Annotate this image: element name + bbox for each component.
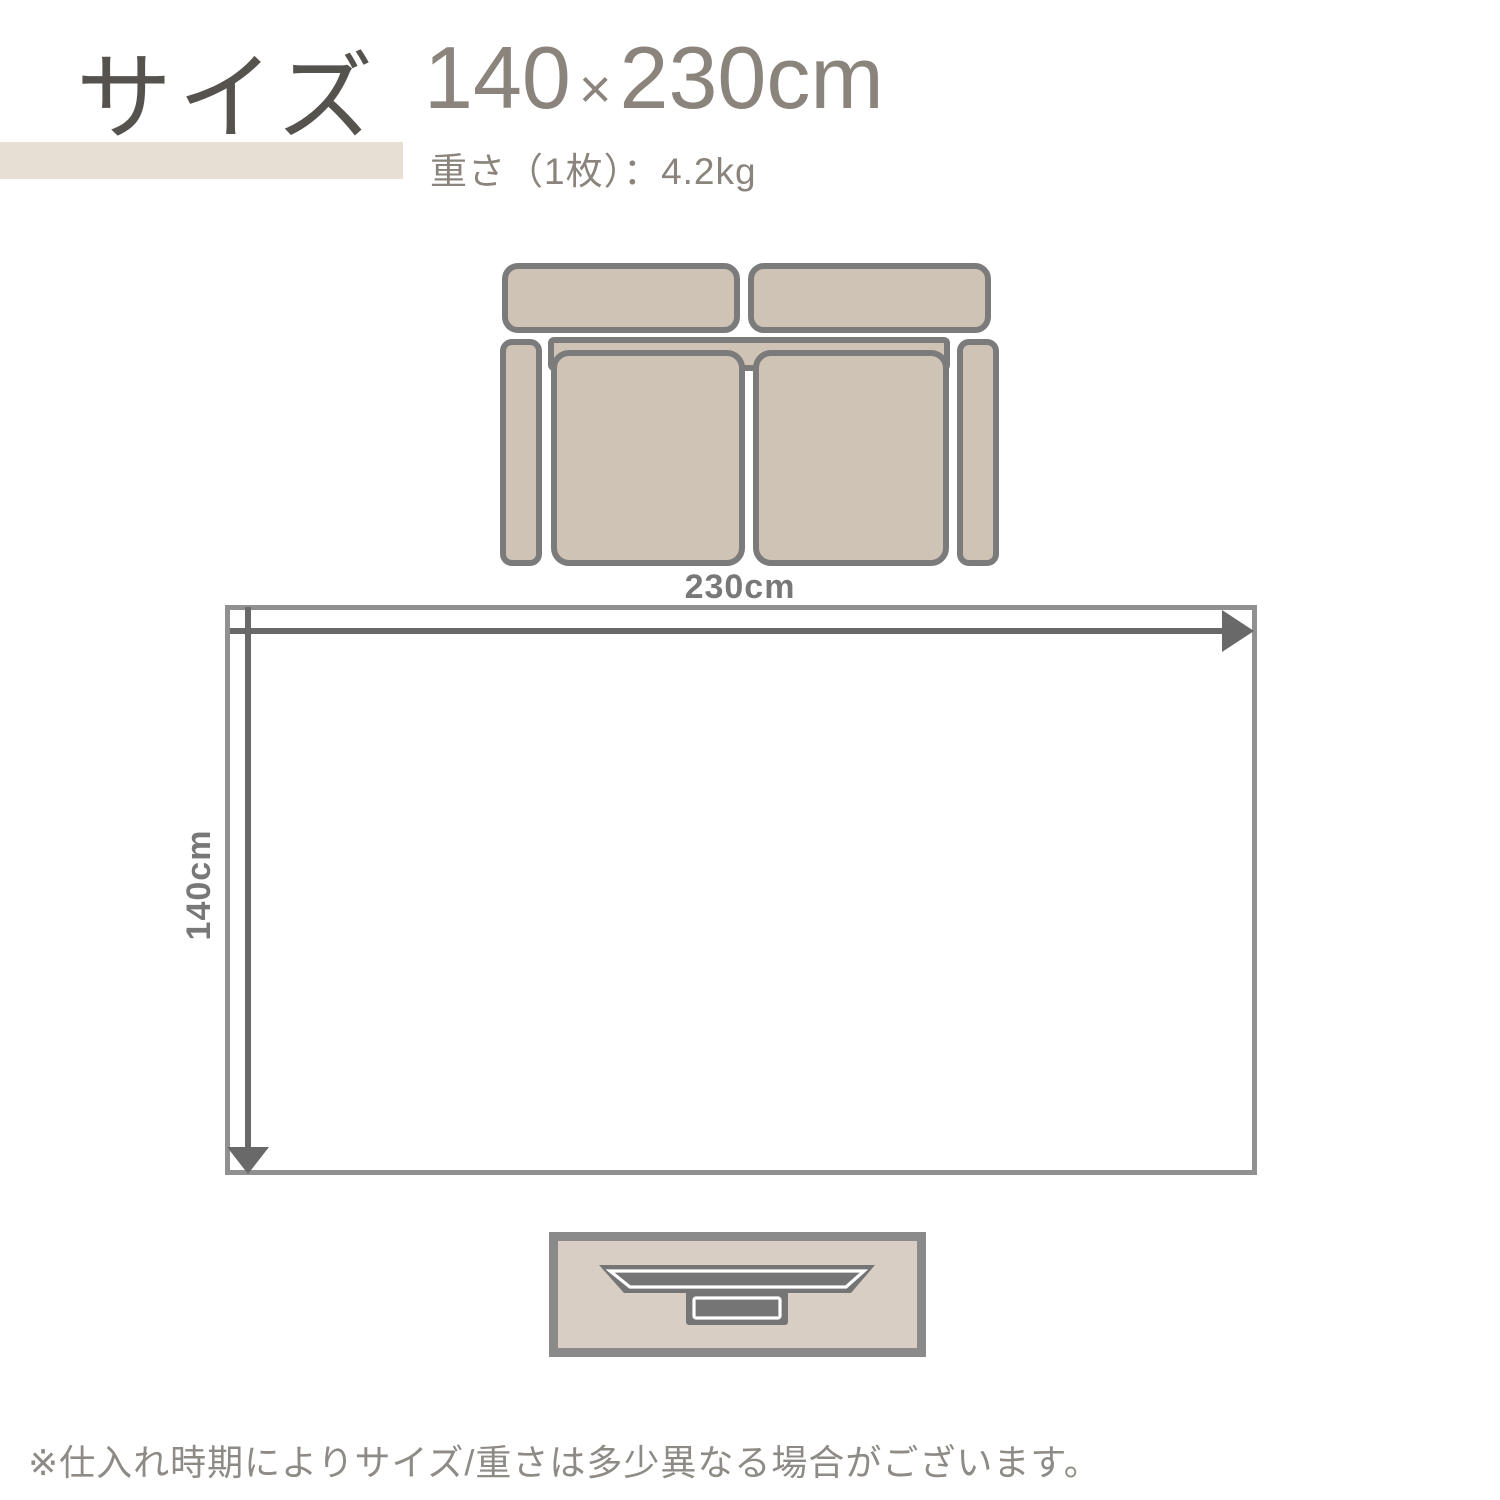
sofa-armrest-right [957, 339, 999, 566]
size-height-value: 230cm [620, 28, 884, 127]
width-arrow-head [1222, 610, 1254, 652]
footnote-text: ※仕入れ時期によりサイズ/重さは多少異なる場合がございます。 [28, 1434, 1101, 1486]
sofa-illustration [494, 263, 1004, 566]
sofa-seat-cushion-right [753, 350, 949, 566]
page-title: サイズ [76, 48, 379, 149]
sofa-back-cushion-left [502, 263, 740, 333]
tv-board-illustration [549, 1232, 926, 1357]
width-arrow-line [230, 628, 1223, 634]
size-value: 140×230cm [424, 32, 884, 124]
tv-base-shape [686, 1291, 788, 1325]
weight-text: 重さ（1枚）：4.2kg [430, 141, 757, 195]
height-arrow-head [227, 1147, 269, 1174]
rug-width-label: 230cm [640, 568, 840, 607]
rug-height-label: 140cm [180, 815, 216, 955]
sofa-seat-cushion-left [551, 350, 745, 566]
multiply-sign: × [571, 57, 620, 120]
sofa-back-cushion-right [748, 263, 991, 333]
height-arrow-line [245, 607, 251, 1147]
rug-outline [225, 605, 1257, 1175]
sofa-armrest-left [500, 339, 542, 566]
tv-screen-shape [599, 1265, 875, 1293]
size-width-value: 140 [424, 28, 571, 127]
tv-icon [588, 1260, 888, 1330]
